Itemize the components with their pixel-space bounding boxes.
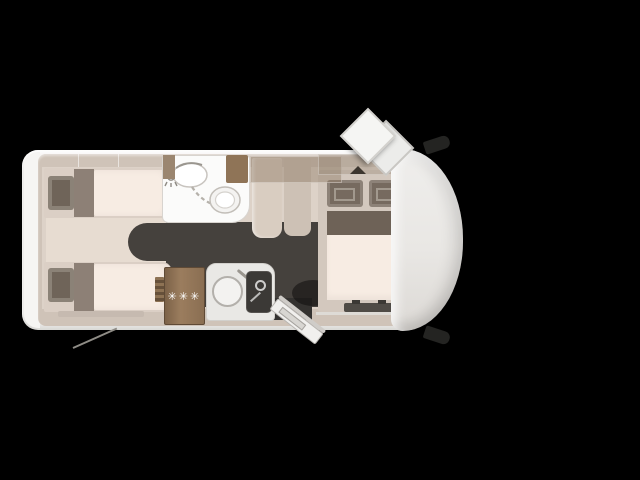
floorplan-scene: ✳✳✳ [0, 0, 640, 480]
double-bed-pillow-left [327, 180, 363, 207]
bed-step-strip [344, 303, 398, 312]
support-rod [73, 328, 118, 349]
twin-bed-bottom-pillow [48, 268, 74, 302]
pillow-stitch [334, 188, 355, 201]
side-mirror-bottom-icon [423, 325, 452, 345]
step-notch [352, 300, 360, 304]
bathroom-shelf [163, 155, 175, 179]
wall-seam [118, 154, 119, 167]
twin-bed-top-pillow [48, 176, 74, 210]
kitchen-sink-icon [212, 276, 243, 307]
freezer-star-rating: ✳✳✳ [168, 291, 202, 302]
toilet-cistern-cabinet [226, 155, 248, 183]
twin-bed-top-backrest [74, 169, 94, 217]
cab-hood [391, 149, 463, 331]
bottom-wall-window [58, 311, 144, 317]
fridge-cabinet: ✳✳✳ [164, 267, 205, 325]
step-notch [378, 300, 386, 304]
wall-seam [78, 154, 79, 167]
twin-bed-bottom-backrest [74, 263, 94, 311]
kettle-icon [255, 280, 266, 291]
twin-bed-top-mattress [94, 170, 172, 216]
side-mirror-top-icon [423, 134, 452, 154]
toilet-bowl-inner [216, 192, 235, 208]
heater-vent [155, 277, 164, 302]
